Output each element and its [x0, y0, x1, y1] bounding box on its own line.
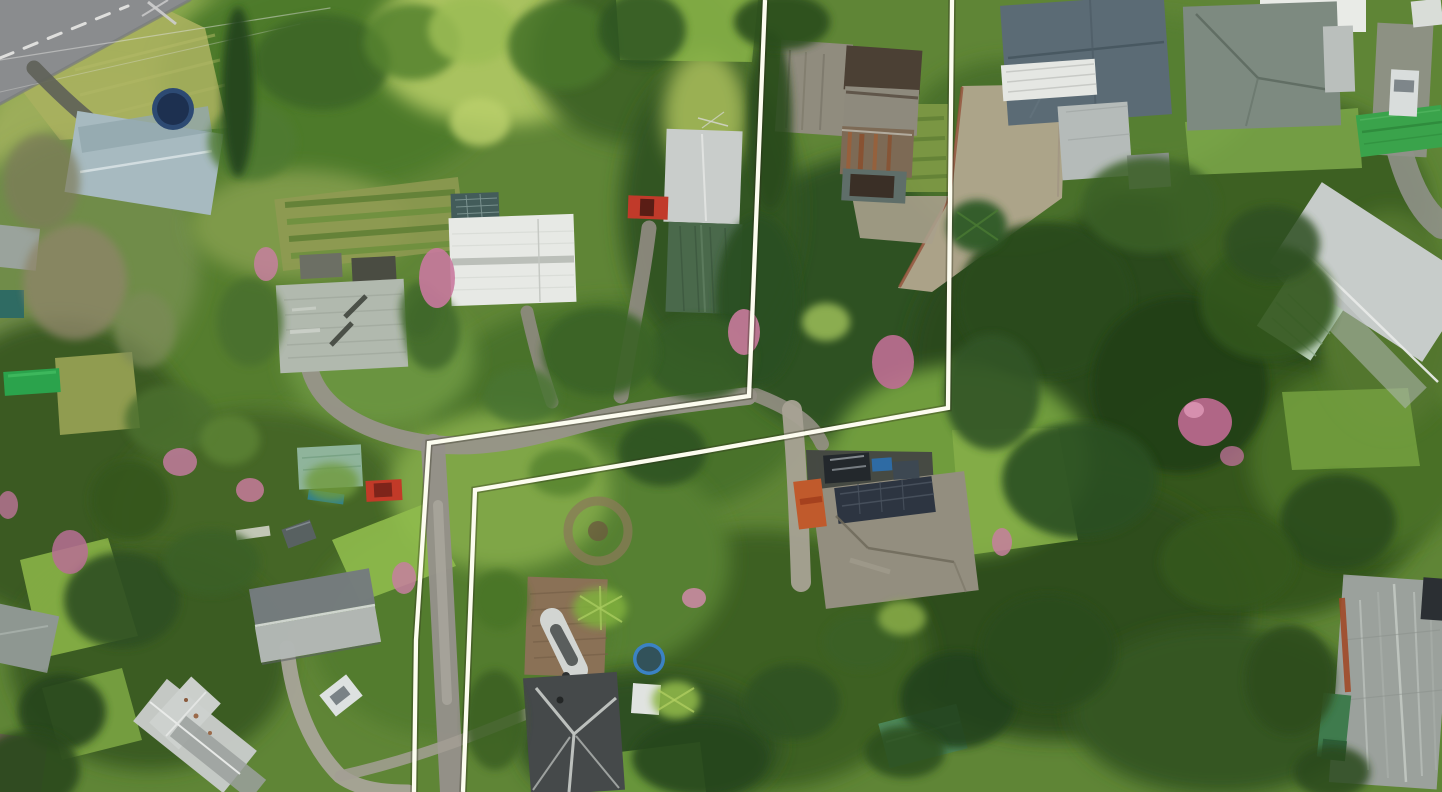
roof-mottle — [290, 330, 320, 332]
left-edge-teal-shed — [0, 290, 24, 318]
parked-car — [892, 460, 919, 480]
tree-canopy — [865, 726, 945, 778]
orange-shed-stripe — [800, 499, 822, 502]
rust-streak — [860, 134, 862, 174]
chimney — [557, 697, 564, 704]
roof-ridge-band — [452, 259, 574, 262]
tree-canopy — [217, 278, 283, 366]
pink-blossom-highlight — [1184, 402, 1204, 418]
red-ute-cab — [640, 199, 655, 216]
roof-mottle — [292, 308, 316, 310]
shed-interior-dark — [849, 174, 894, 198]
orange-shed — [793, 478, 827, 529]
tree-canopy — [1082, 157, 1218, 253]
pink-blossom-tree — [392, 562, 416, 594]
pink-blossom-tree — [992, 528, 1012, 556]
bush — [305, 463, 359, 501]
trampoline-mat — [157, 93, 189, 125]
hedge — [222, 7, 254, 177]
rust-speck — [194, 714, 199, 719]
tree-canopy — [1160, 514, 1296, 610]
pink-blossom-tree — [1220, 446, 1244, 466]
pink-blossom-tree — [419, 248, 455, 308]
tree-canopy — [744, 664, 840, 740]
pink-blossom-tree — [236, 478, 264, 502]
shrub — [200, 415, 260, 465]
white-vehicle — [1411, 0, 1442, 27]
bush-lime — [802, 303, 850, 341]
tree-canopy — [542, 308, 658, 396]
roof-plane-dark — [252, 586, 372, 607]
palm-frond — [600, 586, 601, 630]
rust-speck — [208, 731, 212, 735]
red-car-roof — [374, 483, 393, 498]
white-car — [1389, 69, 1419, 116]
rust-streak — [848, 132, 850, 172]
garden-ring-center — [588, 521, 608, 541]
tree-canopy — [944, 334, 1040, 450]
leanto-roof — [1323, 25, 1355, 92]
blue-bin — [872, 457, 893, 471]
roof-left-big-house — [276, 279, 408, 374]
roof-far-topright-house — [1183, 1, 1341, 130]
roof-plane-light — [258, 624, 378, 645]
scene-layers — [0, 0, 1442, 792]
bush-lime — [450, 98, 510, 146]
tree-canopy — [1280, 474, 1396, 570]
dead-tree — [4, 134, 80, 230]
shed-roof — [299, 253, 342, 279]
shrub — [90, 460, 170, 540]
tree-canopy — [1224, 206, 1320, 282]
pool-water — [637, 647, 662, 672]
bush-lime — [878, 601, 926, 635]
pink-blossom-tree — [872, 335, 914, 389]
dead-tree — [23, 224, 127, 340]
rust-streak — [888, 135, 890, 176]
shrub — [115, 292, 175, 368]
pink-blossom-tree — [254, 247, 278, 281]
car-windshield — [1394, 79, 1415, 92]
tree-canopy — [484, 368, 560, 424]
pink-blossom-tree — [52, 530, 88, 574]
tree-canopy — [980, 594, 1116, 710]
scene-svg — [0, 0, 1442, 792]
rust-speck — [184, 698, 188, 702]
pink-blossom-tree — [682, 588, 706, 608]
rust-streak — [874, 134, 876, 175]
tree-canopy — [1002, 422, 1158, 538]
shrub — [472, 570, 528, 630]
aerial-property-photo — [0, 0, 1442, 792]
tree-canopy — [508, 2, 616, 90]
shrub — [465, 670, 525, 770]
tree-canopy — [1245, 625, 1335, 735]
dark-vehicle — [1421, 577, 1442, 620]
tree-canopy — [164, 529, 260, 595]
pink-blossom-tree — [163, 448, 197, 476]
